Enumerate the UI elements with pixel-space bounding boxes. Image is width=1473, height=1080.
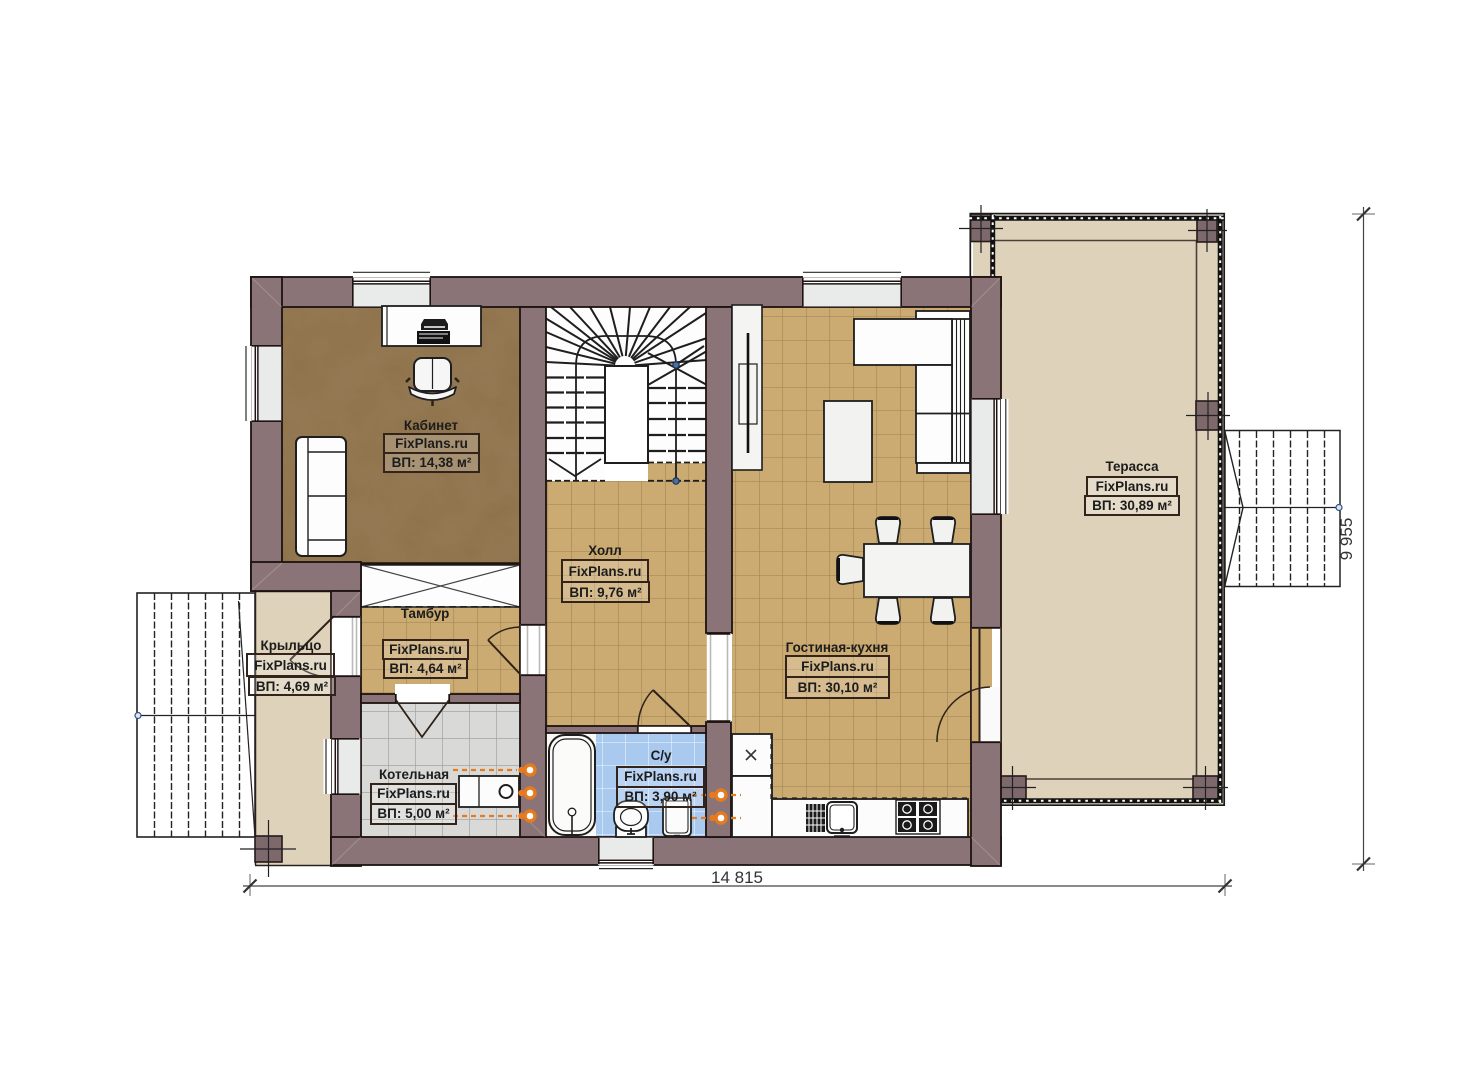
- svg-text:Крыльцо: Крыльцо: [261, 638, 322, 653]
- svg-text:ВП: 4,64 м²: ВП: 4,64 м²: [389, 661, 462, 676]
- svg-text:9 955: 9 955: [1337, 518, 1356, 561]
- svg-text:Котельная: Котельная: [379, 767, 449, 782]
- svg-text:FixPlans.ru: FixPlans.ru: [389, 642, 462, 657]
- svg-text:Терасса: Терасса: [1105, 459, 1159, 474]
- svg-text:14 815: 14 815: [711, 868, 763, 887]
- svg-text:ВП: 4,69 м²: ВП: 4,69 м²: [256, 679, 329, 694]
- svg-text:Гостиная-кухня: Гостиная-кухня: [786, 640, 889, 655]
- svg-text:Тамбур: Тамбур: [401, 606, 450, 621]
- svg-text:ВП: 30,89 м²: ВП: 30,89 м²: [1092, 498, 1172, 513]
- svg-text:FixPlans.ru: FixPlans.ru: [569, 564, 642, 579]
- svg-text:ВП: 3,90 м²: ВП: 3,90 м²: [624, 789, 697, 804]
- svg-text:Кабинет: Кабинет: [404, 418, 459, 433]
- svg-text:С/у: С/у: [651, 748, 672, 763]
- svg-text:FixPlans.ru: FixPlans.ru: [254, 658, 327, 673]
- svg-text:FixPlans.ru: FixPlans.ru: [1096, 479, 1169, 494]
- svg-text:FixPlans.ru: FixPlans.ru: [395, 436, 468, 451]
- svg-text:FixPlans.ru: FixPlans.ru: [624, 769, 697, 784]
- svg-text:FixPlans.ru: FixPlans.ru: [801, 659, 874, 674]
- svg-text:ВП: 9,76 м²: ВП: 9,76 м²: [569, 585, 642, 600]
- svg-text:Холл: Холл: [588, 543, 622, 558]
- svg-text:ВП: 5,00 м²: ВП: 5,00 м²: [377, 806, 450, 821]
- svg-text:FixPlans.ru: FixPlans.ru: [377, 786, 450, 801]
- svg-text:ВП: 14,38 м²: ВП: 14,38 м²: [392, 455, 472, 470]
- svg-text:ВП: 30,10 м²: ВП: 30,10 м²: [798, 680, 878, 695]
